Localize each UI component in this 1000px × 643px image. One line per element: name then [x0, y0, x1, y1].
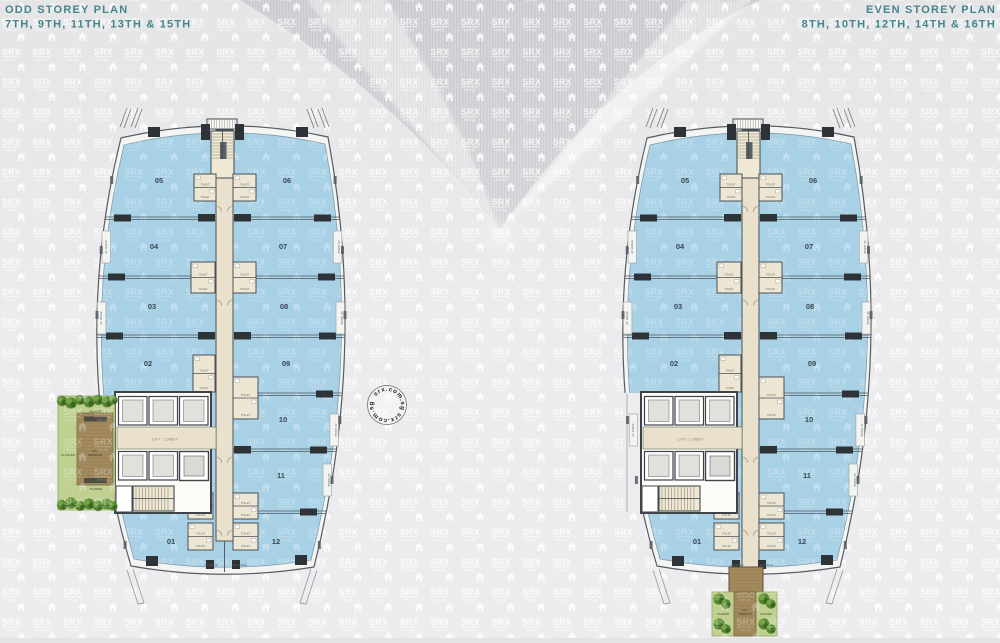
svg-text:TOILET: TOILET	[722, 532, 732, 536]
svg-text:10: 10	[805, 415, 813, 424]
svg-text:02: 02	[670, 359, 678, 368]
svg-text:TOILET: TOILET	[200, 195, 210, 199]
svg-text:08: 08	[806, 302, 814, 311]
svg-text:AC LEDGE: AC LEDGE	[860, 423, 864, 436]
svg-text:06: 06	[283, 176, 291, 185]
svg-text:AC LEDGE: AC LEDGE	[866, 311, 870, 324]
svg-text:09: 09	[808, 359, 816, 368]
svg-text:07: 07	[279, 242, 287, 251]
svg-text:EVEN STOREY PLAN: EVEN STOREY PLAN	[866, 4, 996, 16]
svg-text:TOILET: TOILET	[767, 393, 777, 397]
svg-text:12: 12	[272, 537, 280, 546]
svg-text:01: 01	[167, 537, 175, 546]
svg-text:08: 08	[280, 302, 288, 311]
svg-text:TOILET: TOILET	[241, 532, 251, 536]
svg-text:TOILET: TOILET	[724, 287, 734, 291]
svg-text:05: 05	[681, 176, 689, 185]
svg-text:07: 07	[805, 242, 813, 251]
svg-text:TOILET: TOILET	[241, 393, 251, 397]
svg-text:TOILET: TOILET	[767, 544, 777, 548]
svg-text:AC LEDGE: AC LEDGE	[337, 240, 341, 253]
svg-text:11: 11	[803, 471, 811, 480]
svg-text:06: 06	[809, 176, 817, 185]
svg-text:ODD STOREY PLAN: ODD STOREY PLAN	[5, 4, 128, 16]
svg-text:09: 09	[282, 359, 290, 368]
svg-text:AC LEDGE: AC LEDGE	[204, 563, 217, 567]
svg-text:TOILET: TOILET	[766, 287, 776, 291]
svg-text:TOILET: TOILET	[241, 544, 251, 548]
svg-text:TOILET: TOILET	[240, 287, 250, 291]
svg-text:AC LEDGE: AC LEDGE	[99, 311, 103, 324]
svg-text:04: 04	[150, 242, 159, 251]
svg-text:AC LEDGE: AC LEDGE	[334, 423, 338, 436]
svg-text:8TH, 10TH, 12TH, 14TH & 16TH: 8TH, 10TH, 12TH, 14TH & 16TH	[802, 19, 996, 31]
svg-text:TOILET: TOILET	[241, 501, 251, 505]
svg-text:AC LEDGE: AC LEDGE	[863, 240, 867, 253]
svg-text:AC LEDGE: AC LEDGE	[327, 473, 331, 486]
svg-text:TOILET: TOILET	[767, 532, 777, 536]
svg-text:LIFT LOBBY: LIFT LOBBY	[678, 437, 705, 442]
svg-text:TOILET: TOILET	[767, 413, 777, 417]
svg-text:AC LEDGE: AC LEDGE	[631, 423, 635, 436]
svg-text:AC LEDGE: AC LEDGE	[233, 563, 246, 567]
svg-text:11: 11	[277, 471, 285, 480]
svg-text:03: 03	[148, 302, 156, 311]
svg-text:AC LEDGE: AC LEDGE	[759, 563, 772, 567]
svg-text:01: 01	[693, 537, 701, 546]
svg-text:TOILET: TOILET	[725, 369, 735, 373]
svg-text:TOILET: TOILET	[726, 183, 736, 187]
svg-text:TOILET: TOILET	[725, 386, 735, 390]
svg-text:TOILET: TOILET	[766, 183, 776, 187]
svg-text:TOILET: TOILET	[767, 513, 777, 517]
svg-text:02: 02	[144, 359, 152, 368]
svg-text:TOILET: TOILET	[726, 195, 736, 199]
svg-text:TOILET: TOILET	[722, 544, 732, 548]
svg-text:05: 05	[155, 176, 163, 185]
svg-text:AC LEDGE: AC LEDGE	[104, 240, 108, 253]
svg-text:03: 03	[674, 302, 682, 311]
svg-text:TOILET: TOILET	[241, 413, 251, 417]
svg-text:TOILET: TOILET	[724, 273, 734, 277]
svg-text:12: 12	[798, 537, 806, 546]
svg-text:TOILET: TOILET	[199, 386, 209, 390]
svg-text:AC LEDGE: AC LEDGE	[853, 473, 857, 486]
svg-text:TOILET: TOILET	[240, 183, 250, 187]
svg-text:TOILET: TOILET	[766, 273, 776, 277]
svg-text:10: 10	[279, 415, 287, 424]
svg-text:TOILET: TOILET	[199, 369, 209, 373]
svg-text:TOILET: TOILET	[196, 544, 206, 548]
svg-text:AC LEDGE: AC LEDGE	[630, 240, 634, 253]
svg-text:TOILET: TOILET	[198, 287, 208, 291]
svg-text:TOILET: TOILET	[198, 273, 208, 277]
svg-text:TOILET: TOILET	[240, 273, 250, 277]
svg-text:TOILET: TOILET	[767, 501, 777, 505]
svg-text:TOILET: TOILET	[766, 195, 776, 199]
svg-text:TOILET: TOILET	[241, 513, 251, 517]
svg-text:AC LEDGE: AC LEDGE	[625, 311, 629, 324]
svg-text:TOILET: TOILET	[196, 532, 206, 536]
svg-text:AC LEDGE: AC LEDGE	[340, 311, 344, 324]
svg-text:TOILET: TOILET	[240, 195, 250, 199]
svg-text:04: 04	[676, 242, 685, 251]
svg-text:TOILET: TOILET	[200, 183, 210, 187]
svg-text:LIFT LOBBY: LIFT LOBBY	[152, 437, 179, 442]
svg-text:AC LEDGE: AC LEDGE	[730, 563, 743, 567]
svg-text:7TH, 9TH, 11TH, 13TH & 15TH: 7TH, 9TH, 11TH, 13TH & 15TH	[5, 19, 191, 31]
